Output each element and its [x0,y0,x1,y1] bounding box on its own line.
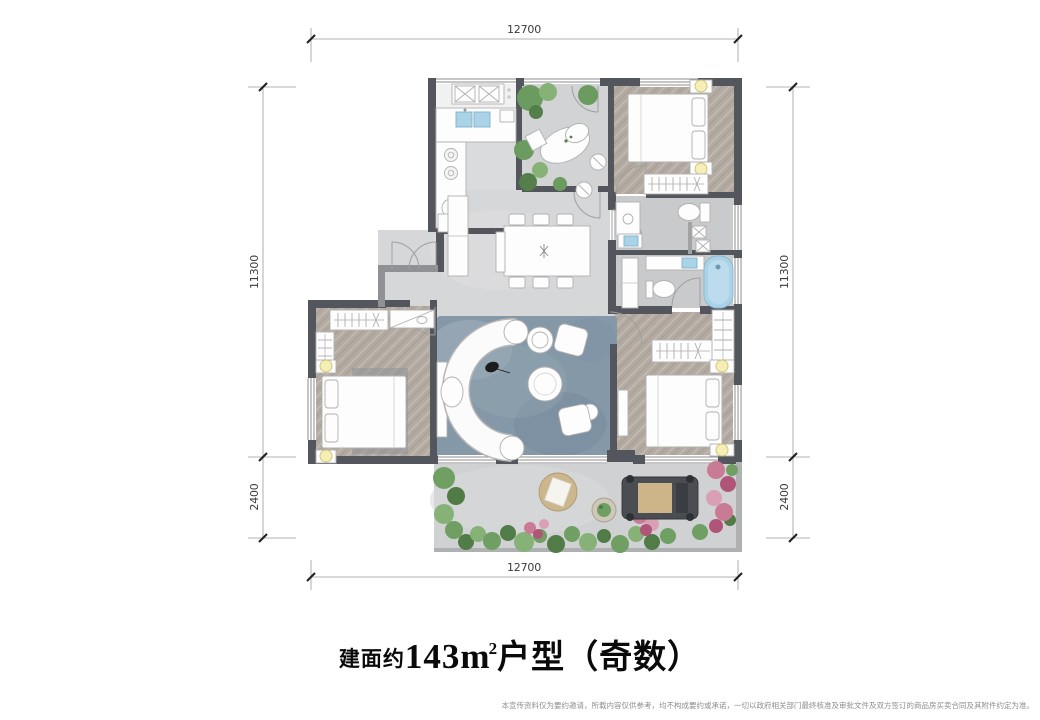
window-bedroom-master [733,385,743,440]
dim-right-upper: 11300 [778,255,791,289]
floor-plan-figure: 12700 12700 11300 2400 11300 2400 [0,0,1040,620]
window-bedroom-left [306,378,316,440]
plan-title: 建面约143m2户型（奇数） [0,630,1040,678]
sofa-arm [504,320,528,344]
pillow [692,131,705,159]
bench [496,232,505,272]
armchair [557,403,592,437]
chair [509,277,525,288]
window-platform [436,77,516,84]
toilet [678,204,700,221]
pillow [706,379,719,407]
dining-table [504,226,590,276]
dim-bottom: 12700 [507,561,541,574]
window-bath-b [733,258,743,304]
chair [533,214,549,225]
chair [533,277,549,288]
kitchen-sink-2 [474,112,490,127]
title-suffix: 户型（奇数） [497,640,701,676]
pillow [325,414,338,442]
window-master-bottom [645,455,718,464]
chair [557,277,573,288]
pillow [692,98,705,126]
dim-top: 12700 [507,23,541,36]
stove-burner [445,149,458,162]
toilet [653,281,675,298]
daybed [622,475,698,521]
kitchen-appliance [500,110,514,122]
lamp-icon [716,444,728,456]
window-courtyard-top [524,77,600,84]
disclaimer-text: 本宣传资料仅为要约邀请，所载内容仅供参考，均不构成要约或承诺，一切以政府相关部门… [502,700,1035,711]
kitchen-sink [456,112,472,127]
lamp-icon [695,163,707,175]
toilet-tank [646,281,653,298]
sink [682,258,697,268]
pillow [325,380,338,408]
lamp-icon [695,80,707,92]
floor-plan-svg: 12700 12700 11300 2400 11300 2400 [0,0,1040,620]
platform-unit [452,84,504,104]
title-area-value: 143 [405,637,461,676]
coffee-table [527,327,553,353]
lamp-icon [320,360,332,372]
page: 12700 12700 11300 2400 11300 2400 建面约143… [0,0,1040,720]
sliding-door-living [438,454,607,464]
window-bath-a [733,205,743,250]
sink [624,236,638,246]
dim-left-upper: 11300 [248,255,261,289]
toilet-tank [700,203,710,222]
stove-burner [445,167,458,180]
pillow [706,412,719,440]
tv-cabinet [618,390,628,436]
chair [509,214,525,225]
shower [616,202,640,236]
pouf [441,377,463,407]
dim-right-lower: 2400 [778,483,791,510]
window-bedroom-top [640,77,698,87]
lamp-icon [716,360,728,372]
coffee-table-large [528,367,562,401]
sofa-arm [500,436,524,460]
title-area-unit: m [460,637,490,676]
title-prefix: 建面约 [339,647,405,671]
chair [557,214,573,225]
lamp-icon [320,450,332,462]
dim-left-lower: 2400 [248,483,261,510]
